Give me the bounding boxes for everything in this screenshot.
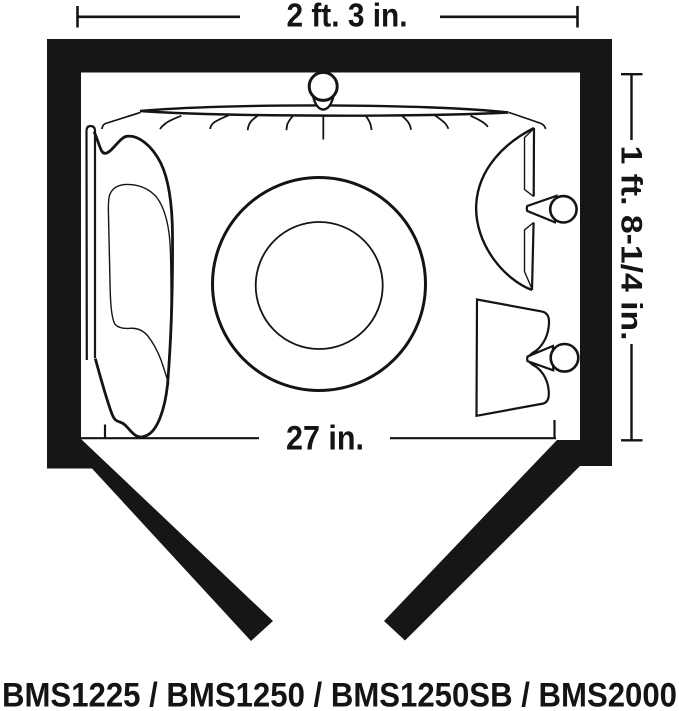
svg-text:BMS1225 / BMS1250 / BMS1250SB: BMS1225 / BMS1250 / BMS1250SB / BMS2000 xyxy=(2,676,677,711)
svg-text:27 in.: 27 in. xyxy=(286,420,364,458)
svg-text:1 ft. 8-1/4 in.: 1 ft. 8-1/4 in. xyxy=(615,146,648,341)
svg-text:2 ft. 3 in.: 2 ft. 3 in. xyxy=(287,0,408,34)
